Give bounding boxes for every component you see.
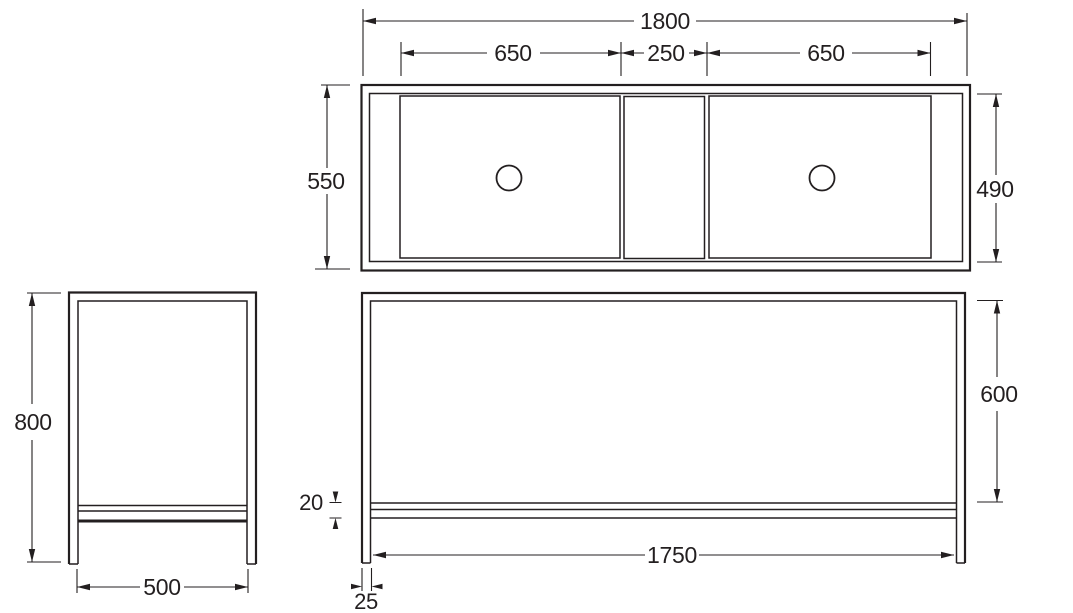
left-bowl	[400, 96, 620, 258]
left-waste-hole	[497, 166, 522, 191]
sink-unit-technical-drawing: 1800 650 250 650	[0, 0, 1073, 613]
dim-bowl-depth-label: 490	[976, 176, 1013, 202]
plan-outer-edge	[362, 85, 971, 271]
dim-leg-thickness: 25	[351, 568, 383, 613]
side-inner-frame	[78, 301, 247, 564]
dim-side-depth-label: 500	[143, 574, 180, 600]
dim-leg-span: 1750	[373, 542, 954, 568]
dim-overall-height-label: 800	[14, 409, 51, 435]
dim-leg-thickness-lines	[362, 568, 372, 591]
front-inner-frame	[371, 301, 957, 563]
dim-right-bowl-label: 650	[807, 40, 844, 66]
dim-overall-depth: 550	[307, 85, 350, 269]
dim-side-depth: 500	[77, 569, 248, 600]
dim-center-section-label: 250	[647, 40, 684, 66]
dim-center-section-width: 250	[621, 40, 707, 76]
dim-clearance-height-label: 600	[980, 381, 1017, 407]
right-waste-hole	[810, 166, 835, 191]
dim-rail-thickness: 20	[299, 490, 341, 529]
dim-bowl-depth: 490	[976, 94, 1013, 262]
plan-inner-edge	[370, 94, 963, 262]
side-outer-frame	[69, 293, 256, 565]
dim-leg-thickness-label: 25	[354, 589, 378, 613]
dim-overall-height: 800	[14, 293, 61, 562]
front-stretcher-rail	[371, 510, 957, 519]
dim-left-bowl-width: 650	[401, 40, 621, 76]
dim-overall-width-label: 1800	[640, 8, 690, 34]
technical-drawing-page: 1800 650 250 650	[0, 0, 1073, 613]
side-panel-bottom-edge	[78, 506, 247, 512]
dim-leg-span-label: 1750	[647, 542, 697, 568]
dim-right-bowl-width: 650	[707, 40, 931, 76]
dim-left-bowl-label: 650	[494, 40, 531, 66]
dim-rail-thickness-arrowheads	[333, 492, 339, 530]
front-view: 600 20 1750 25	[299, 293, 1018, 613]
plan-view: 1800 650 250 650	[307, 8, 1013, 271]
side-view: 800 500	[14, 293, 256, 601]
dim-overall-depth-label: 550	[307, 168, 344, 194]
center-drainer-section	[624, 97, 705, 259]
right-bowl	[709, 96, 931, 258]
dim-clearance-height: 600	[977, 301, 1018, 503]
dim-rail-thickness-ticks	[330, 503, 342, 519]
front-outer-frame	[362, 293, 965, 563]
dim-rail-thickness-label: 20	[299, 490, 323, 515]
